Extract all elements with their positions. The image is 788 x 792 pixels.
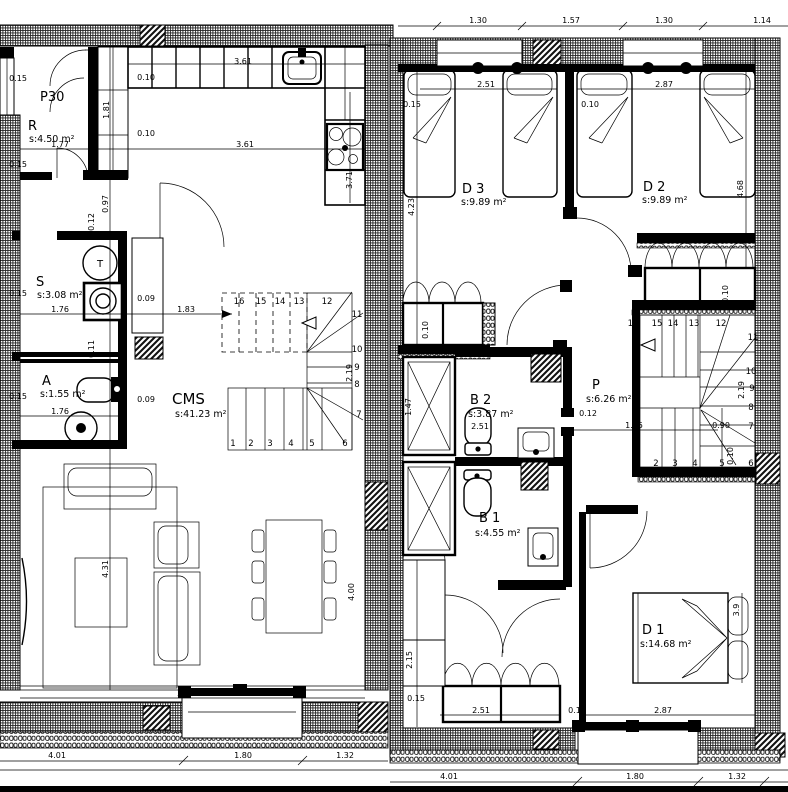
- kitchen-sink: [283, 48, 321, 84]
- dim: 4.00: [347, 583, 356, 601]
- room-d1-area: s:14.68 m²: [640, 639, 692, 650]
- room-d1-label: D 1: [642, 623, 664, 638]
- stair-step: 2: [653, 459, 658, 469]
- sheet-base-lines: [0, 770, 788, 792]
- floor-plan-drawing: P30 R s:4.50 m² S s:3.08 m² A s:1.55 m² …: [0, 0, 788, 792]
- stair-step: 13: [294, 297, 305, 307]
- dim: 0.11: [87, 340, 96, 358]
- room-s-area: s:3.08 m²: [37, 290, 83, 301]
- dining-set: [252, 520, 336, 633]
- stair-step: 3: [672, 459, 677, 469]
- dim: 0.09: [137, 395, 155, 404]
- sink-b1: [528, 528, 558, 566]
- room-d3-area: s:9.89 m²: [461, 197, 507, 208]
- dim: 0.15: [407, 694, 425, 703]
- door-d2: [577, 218, 631, 272]
- dim: 1.14: [753, 16, 771, 25]
- dim: 1.95: [625, 421, 643, 430]
- dim: 0.12: [579, 409, 597, 418]
- stove: [327, 124, 363, 170]
- stair-step: 9: [354, 363, 359, 373]
- dim: 1.76: [51, 305, 69, 314]
- stair-step: 3: [267, 439, 272, 449]
- dim: 2.19: [737, 381, 746, 399]
- tv-icon: [22, 558, 27, 645]
- door-b1: [445, 580, 566, 657]
- toilet-b1: [464, 470, 491, 516]
- dim: 0.12: [87, 213, 96, 231]
- dim: 3.71: [345, 171, 354, 189]
- wardrobe-corridor: [403, 542, 560, 722]
- dim: 0.15: [403, 100, 421, 109]
- dim: 0.15: [9, 289, 27, 298]
- room-a-area: s:1.55 m²: [40, 389, 86, 400]
- window-d1: [572, 720, 701, 764]
- room-d2-area: s:9.89 m²: [642, 195, 688, 206]
- stair-step: 6: [748, 459, 753, 469]
- stair-step: 16: [628, 319, 639, 329]
- dim: 4.68: [736, 180, 745, 198]
- dim: 1.80: [234, 751, 252, 760]
- stair-step: 9: [749, 384, 754, 394]
- stair-direction-arrow: [641, 339, 655, 351]
- dim: 0.10: [568, 706, 586, 715]
- dim: 0.10: [581, 100, 599, 109]
- living-furniture: [22, 464, 200, 688]
- dim: 4.31: [101, 560, 110, 578]
- stair-step: 14: [275, 297, 286, 307]
- room-cms-label: CMS: [172, 390, 205, 408]
- stair-direction-arrow: [302, 317, 316, 329]
- stair-step: 15: [256, 297, 267, 307]
- stair-step: 2: [248, 439, 253, 449]
- washer-letter: T: [96, 259, 104, 270]
- upper-floor-plan: D 3 s:9.89 m² D 2 s:9.89 m² P s:6.26 m² …: [390, 16, 788, 786]
- stair-step: 11: [748, 333, 759, 343]
- wc-room: [20, 363, 127, 449]
- door-d3: [507, 285, 567, 345]
- room-b1-area: s:4.55 m²: [475, 528, 521, 539]
- dim: 3.61: [234, 57, 252, 66]
- dim: 0.10: [726, 447, 735, 465]
- r-room-door: [20, 148, 96, 180]
- room-cms-area: s:41.23 m²: [175, 409, 227, 420]
- stair-step: 10: [746, 367, 757, 377]
- ground-floor-plan: P30 R s:4.50 m² S s:3.08 m² A s:1.55 m² …: [0, 25, 393, 765]
- dim: 2.51: [471, 422, 489, 431]
- stair-step: 10: [352, 345, 363, 355]
- stair-step: 5: [719, 459, 724, 469]
- dim: 2.15: [405, 651, 414, 669]
- dim: 3.9: [732, 604, 741, 617]
- dim: 0.10: [137, 73, 155, 82]
- room-b2-label: B 2: [470, 393, 491, 408]
- stair-step: 12: [716, 319, 727, 329]
- room-p-area: s:6.26 m²: [586, 394, 632, 405]
- terrace-sliding-door: [178, 684, 306, 738]
- stair-step: 11: [352, 310, 363, 320]
- room-d2-label: D 2: [643, 180, 665, 195]
- dim: 1.76: [51, 407, 69, 416]
- room-b2-area: s:3.87 m²: [468, 409, 514, 420]
- dim: 2.19: [345, 364, 354, 382]
- dim: 1.47: [404, 398, 413, 416]
- dim: 3.61: [236, 140, 254, 149]
- stair-step: 8: [748, 403, 753, 413]
- dim: 2.87: [655, 80, 673, 89]
- wardrobe-d2: [645, 243, 755, 310]
- dim: 1.30: [469, 16, 487, 25]
- sink-b2: [518, 428, 554, 458]
- room-d3-label: D 3: [462, 182, 484, 197]
- stair-step: 8: [354, 380, 359, 390]
- stair-step: 4: [692, 459, 697, 469]
- dim: 0.15: [9, 160, 27, 169]
- shower-b1: [403, 462, 455, 555]
- dim: 0.15: [9, 74, 27, 83]
- dim: 4.01: [440, 772, 458, 781]
- stair-step: 7: [748, 422, 753, 432]
- stair-step: 15: [652, 319, 663, 329]
- door-d1: [590, 511, 647, 568]
- stair-step: 6: [342, 439, 347, 449]
- dim: 0.15: [9, 392, 27, 401]
- room-s-label: S: [36, 275, 44, 290]
- dim: 1.83: [177, 305, 195, 314]
- dim: 0.10: [137, 129, 155, 138]
- kitchen-counters: [85, 47, 365, 205]
- stair-step: 1: [230, 439, 235, 449]
- floor-plan-sheet: P30 R s:4.50 m² S s:3.08 m² A s:1.55 m² …: [0, 0, 788, 792]
- stair-step: 16: [234, 297, 245, 307]
- room-a-label: A: [42, 374, 51, 389]
- dim: 4.23: [407, 198, 416, 216]
- dim: 0.09: [137, 294, 155, 303]
- room-b1-label: B 1: [479, 511, 500, 526]
- dim: 5.48: [177, 689, 195, 698]
- dim: 4.01: [48, 751, 66, 760]
- stair-step: 13: [689, 319, 700, 329]
- room-p-label: P: [592, 378, 600, 393]
- dim: 1.81: [102, 101, 111, 119]
- stair-step: 12: [322, 297, 333, 307]
- window-left: [0, 58, 14, 115]
- kitchen-door: [160, 183, 224, 247]
- dim: 1.32: [336, 751, 354, 760]
- dim: 2.51: [477, 80, 495, 89]
- dim: 1.57: [562, 16, 580, 25]
- dim: 1.30: [655, 16, 673, 25]
- stair-step: 4: [288, 439, 293, 449]
- dim: 1.32: [728, 772, 746, 781]
- dim: 1.80: [626, 772, 644, 781]
- dim: 1.77: [51, 140, 69, 149]
- stair-step: 7: [356, 410, 361, 420]
- door-code-label: P30: [40, 90, 64, 105]
- dim: 0.10: [421, 321, 430, 339]
- room-r-label: R: [28, 119, 37, 134]
- stairs-ground: [222, 292, 363, 450]
- dim: 0.90: [712, 421, 730, 430]
- dim: 0.10: [721, 285, 730, 303]
- bed-d1: [633, 593, 748, 683]
- dim: 2.51: [472, 706, 490, 715]
- stair-step: 14: [668, 319, 679, 329]
- dim: 2.87: [654, 706, 672, 715]
- dim: 0.97: [101, 195, 110, 213]
- stair-step: 5: [309, 439, 314, 449]
